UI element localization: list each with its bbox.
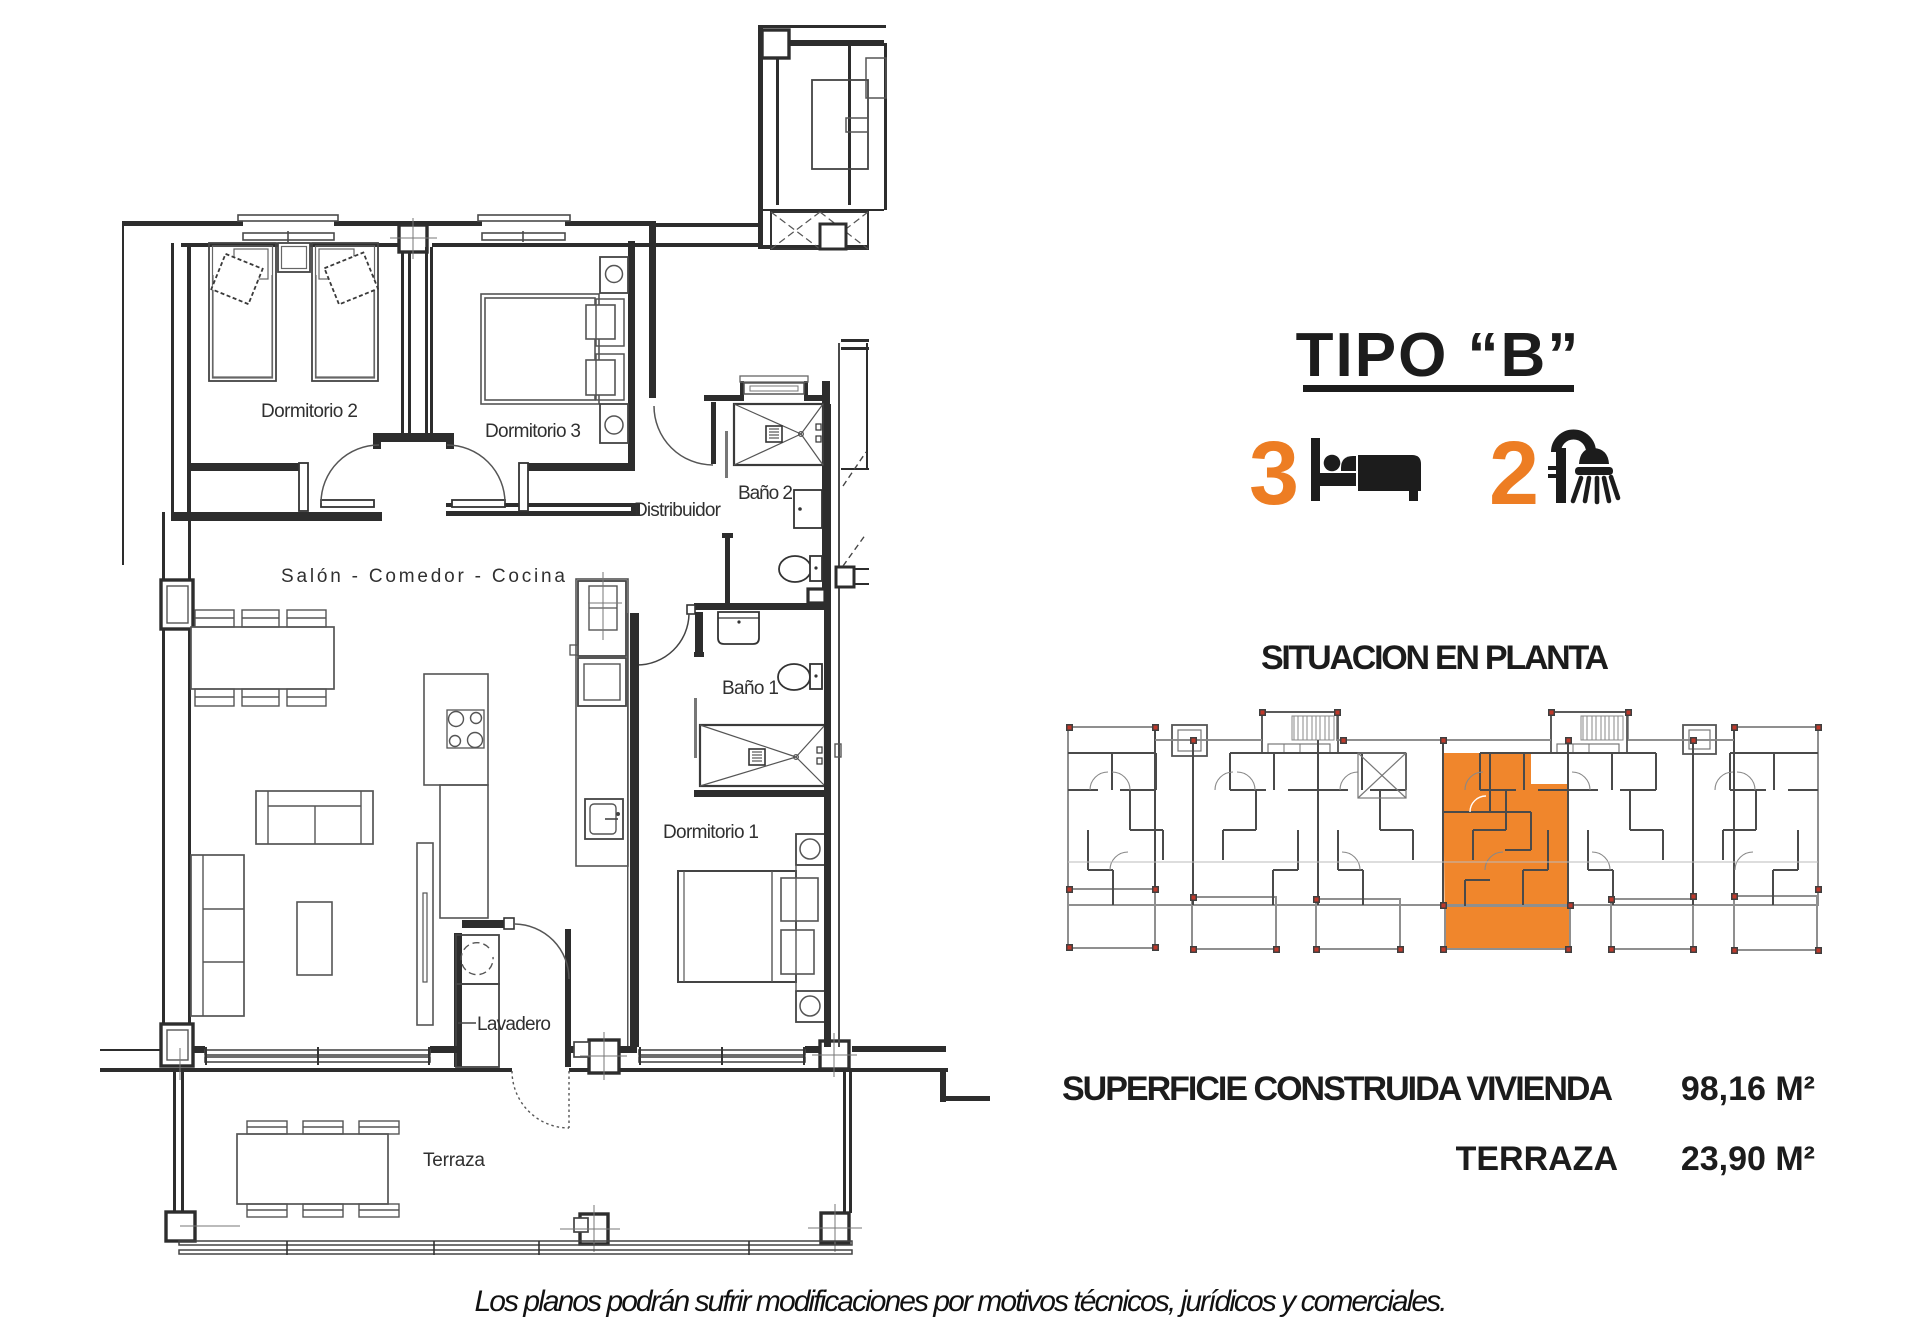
svg-text:Los planos podrán sufrir modif: Los planos podrán sufrir modificaciones …: [475, 1285, 1448, 1318]
svg-text:Baño 2: Baño 2: [738, 483, 793, 504]
svg-text:Salón - Comedor - Cocina: Salón - Comedor - Cocina: [281, 566, 565, 587]
svg-text:SITUACION EN PLANTA: SITUACION EN PLANTA: [1261, 639, 1609, 677]
svg-text:TIPO “B”: TIPO “B”: [1296, 321, 1581, 390]
svg-text:Dormitorio 3: Dormitorio 3: [485, 421, 581, 442]
svg-text:2: 2: [1489, 424, 1539, 524]
svg-text:23,90 M²: 23,90 M²: [1681, 1140, 1815, 1178]
svg-text:Terraza: Terraza: [423, 1150, 485, 1171]
svg-text:Baño 1: Baño 1: [722, 678, 779, 699]
svg-text:Distribuidor: Distribuidor: [634, 500, 722, 521]
svg-text:Lavadero: Lavadero: [477, 1014, 551, 1035]
svg-text:Dormitorio 1: Dormitorio 1: [663, 822, 759, 843]
svg-text:98,16 M²: 98,16 M²: [1681, 1070, 1815, 1108]
svg-text:3: 3: [1249, 424, 1299, 524]
svg-text:SUPERFICIE CONSTRUIDA VIVIENDA: SUPERFICIE CONSTRUIDA VIVIENDA: [1062, 1070, 1613, 1108]
svg-text:TERRAZA: TERRAZA: [1456, 1140, 1618, 1178]
svg-text:Dormitorio 2: Dormitorio 2: [261, 401, 358, 422]
